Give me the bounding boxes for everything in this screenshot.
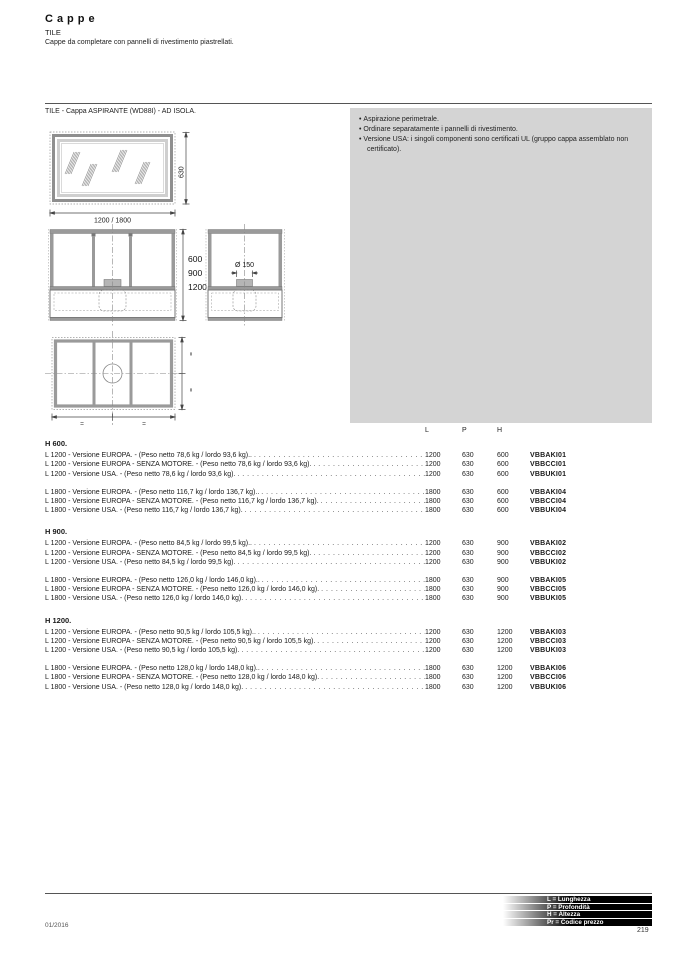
column-header-h: H: [497, 426, 530, 435]
dot-leader: [317, 637, 425, 646]
product-table: L P H H 600.L 1200 - Versione EUROPA. - …: [45, 426, 651, 704]
dot-leader: [261, 488, 425, 497]
product-code: VBBUKI03: [530, 646, 651, 655]
dimension-l: 1800: [425, 683, 462, 692]
legend-item: L = Lunghezza: [503, 896, 652, 904]
product-code: VBBAKI04: [530, 488, 651, 497]
product-row: L 1200 - Versione USA. - (Peso netto 90,…: [45, 646, 651, 655]
dot-leader: [262, 576, 425, 585]
drawing-plan-view: = = = =: [45, 331, 194, 428]
dimension-p: 630: [462, 497, 497, 506]
row-group: L 1800 - Versione EUROPA. - (Peso netto …: [45, 576, 651, 604]
product-code: VBBUKI04: [530, 506, 651, 515]
dimension-p: 630: [462, 451, 497, 460]
dimension-h: 600: [497, 497, 530, 506]
catalog-date: 01/2016: [45, 922, 69, 929]
column-header-p: P: [462, 426, 497, 435]
product-description: L 1800 - Versione USA. - (Peso netto 116…: [45, 506, 425, 515]
product-row: L 1800 - Versione EUROPA - SENZA MOTORE.…: [45, 497, 651, 506]
product-description-text: L 1200 - Versione EUROPA - SENZA MOTORE.…: [45, 637, 315, 646]
dimension-p: 630: [462, 549, 497, 558]
note-item: Versione USA: i singoli componenti sono …: [359, 135, 643, 155]
product-code: VBBCCI02: [530, 549, 651, 558]
dimension-p: 630: [462, 506, 497, 515]
dot-leader: [258, 628, 425, 637]
product-row: L 1800 - Versione EUROPA. - (Peso netto …: [45, 576, 651, 585]
product-row: L 1200 - Versione EUROPA. - (Peso netto …: [45, 451, 651, 460]
dimension-l: 1800: [425, 497, 462, 506]
product-description: L 1200 - Versione EUROPA - SENZA MOTORE.…: [45, 637, 425, 646]
product-description: L 1800 - Versione EUROPA - SENZA MOTORE.…: [45, 497, 425, 506]
table-section: H 900.L 1200 - Versione EUROPA. - (Peso …: [45, 527, 651, 603]
dimension-l: 1200: [425, 558, 462, 567]
row-group: L 1800 - Versione EUROPA. - (Peso netto …: [45, 664, 651, 692]
section-heading: H 1200.: [45, 616, 651, 625]
series-description: Cappe da completare con pannelli di rive…: [45, 39, 234, 46]
legend-item: Pr = Codice prezzo: [503, 919, 652, 927]
drawing-front-view: 600 900 1200: [49, 224, 208, 327]
row-group: L 1200 - Versione EUROPA. - (Peso netto …: [45, 451, 651, 479]
dimension-l: 1800: [425, 664, 462, 673]
product-description-text: L 1200 - Versione EUROPA - SENZA MOTORE.…: [45, 460, 311, 469]
product-description: L 1200 - Versione USA. - (Peso netto 78,…: [45, 470, 425, 479]
dimension-l: 1800: [425, 576, 462, 585]
product-code: VBBAKI06: [530, 664, 651, 673]
table-section: H 1200.L 1200 - Versione EUROPA. - (Peso…: [45, 616, 651, 692]
dimension-h: 1200: [497, 628, 530, 637]
product-code: VBBCCI01: [530, 460, 651, 469]
product-description-text: L 1200 - Versione USA. - (Peso netto 84,…: [45, 558, 235, 567]
product-description-text: L 1800 - Versione EUROPA - SENZA MOTORE.…: [45, 497, 319, 506]
product-row: L 1800 - Versione EUROPA - SENZA MOTORE.…: [45, 673, 651, 682]
product-description-text: L 1200 - Versione EUROPA. - (Peso netto …: [45, 451, 252, 460]
dimension-l: 1200: [425, 451, 462, 460]
width-dimension-label: 1200 / 1800: [94, 218, 131, 225]
product-description-text: L 1800 - Versione USA. - (Peso netto 126…: [45, 594, 243, 603]
dimension-p: 630: [462, 488, 497, 497]
product-code: VBBUKI05: [530, 594, 651, 603]
table-section: H 600.L 1200 - Versione EUROPA. - (Peso …: [45, 439, 651, 515]
product-code: VBBCCI06: [530, 673, 651, 682]
note-item: Ordinare separatamente i pannelli di riv…: [359, 125, 643, 135]
product-code: VBBUKI01: [530, 470, 651, 479]
dimension-p: 630: [462, 646, 497, 655]
equal-spacing-mark: =: [187, 352, 194, 356]
notes-list: Aspirazione perimetrale. Ordinare separa…: [359, 115, 643, 155]
dimension-p: 630: [462, 594, 497, 603]
product-description: L 1200 - Versione USA. - (Peso netto 90,…: [45, 646, 425, 655]
page-title: Cappe: [45, 13, 234, 25]
product-description-text: L 1200 - Versione EUROPA. - (Peso netto …: [45, 628, 256, 637]
product-description-text: L 1200 - Versione EUROPA. - (Peso netto …: [45, 539, 252, 548]
product-description-text: L 1800 - Versione EUROPA - SENZA MOTORE.…: [45, 673, 319, 682]
series-name: TILE: [45, 28, 234, 37]
section-heading: H 600.: [45, 439, 651, 448]
dimension-h: 1200: [497, 664, 530, 673]
document-header: Cappe TILE Cappe da completare con panne…: [45, 13, 234, 46]
bottom-divider: [45, 893, 652, 894]
note-item: Aspirazione perimetrale.: [359, 115, 643, 125]
height-dimension-label: 630: [179, 166, 186, 178]
dimension-h: 900: [497, 539, 530, 548]
dimension-l: 1800: [425, 585, 462, 594]
dimension-p: 630: [462, 576, 497, 585]
dimension-l: 1200: [425, 637, 462, 646]
dimension-h: 1200: [497, 683, 530, 692]
product-row: L 1200 - Versione EUROPA - SENZA MOTORE.…: [45, 549, 651, 558]
product-row: L 1800 - Versione EUROPA - SENZA MOTORE.…: [45, 585, 651, 594]
product-description-text: L 1200 - Versione USA. - (Peso netto 90,…: [45, 646, 239, 655]
product-description-text: L 1200 - Versione USA. - (Peso netto 78,…: [45, 470, 235, 479]
dot-leader: [254, 539, 425, 548]
product-description: L 1800 - Versione USA. - (Peso netto 126…: [45, 594, 425, 603]
dimension-p: 630: [462, 460, 497, 469]
width-dimension: [50, 210, 175, 217]
dimension-l: 1200: [425, 628, 462, 637]
dot-leader: [321, 585, 425, 594]
product-description: L 1800 - Versione EUROPA. - (Peso netto …: [45, 664, 425, 673]
technical-drawings: 630 1200 / 1800 600 900 1200: [45, 126, 295, 431]
drawing-side-view: Ø 150: [206, 224, 285, 327]
dimension-l: 1800: [425, 506, 462, 515]
product-table-body: H 600.L 1200 - Versione EUROPA. - (Peso …: [45, 439, 651, 692]
dimension-h: 600: [497, 460, 530, 469]
dimension-p: 630: [462, 558, 497, 567]
legend-item: H = Altezza: [503, 911, 652, 919]
product-description: L 1800 - Versione EUROPA. - (Peso netto …: [45, 576, 425, 585]
product-code: VBBUKI06: [530, 683, 651, 692]
product-code: VBBUKI02: [530, 558, 651, 567]
dot-leader: [237, 470, 425, 479]
dimension-h: 900: [497, 558, 530, 567]
dot-leader: [241, 646, 425, 655]
front-height-label: 900: [188, 268, 202, 278]
product-description-text: L 1200 - Versione EUROPA - SENZA MOTORE.…: [45, 549, 311, 558]
dimension-p: 630: [462, 628, 497, 637]
product-row: L 1200 - Versione EUROPA. - (Peso netto …: [45, 539, 651, 548]
product-code: VBBAKI02: [530, 539, 651, 548]
dimension-p: 630: [462, 683, 497, 692]
page-number: 219: [637, 927, 649, 934]
notes-box: Aspirazione perimetrale. Ordinare separa…: [350, 108, 652, 423]
dimension-h: 1200: [497, 637, 530, 646]
product-row: L 1200 - Versione EUROPA. - (Peso netto …: [45, 628, 651, 637]
dimension-h: 600: [497, 451, 530, 460]
product-description: L 1200 - Versione EUROPA - SENZA MOTORE.…: [45, 549, 425, 558]
dot-leader: [313, 460, 425, 469]
product-row: L 1800 - Versione USA. - (Peso netto 128…: [45, 683, 651, 692]
product-row: L 1200 - Versione EUROPA - SENZA MOTORE.…: [45, 460, 651, 469]
dimension-h: 600: [497, 506, 530, 515]
dimension-h: 900: [497, 576, 530, 585]
front-height-label: 1200: [188, 282, 207, 292]
dot-leader: [262, 664, 425, 673]
dimension-h: 600: [497, 488, 530, 497]
product-description-text: L 1800 - Versione USA. - (Peso netto 128…: [45, 683, 243, 692]
product-caption: TILE - Cappa ASPIRANTE (WD88I) - AD ISOL…: [45, 108, 196, 115]
product-row: L 1800 - Versione EUROPA. - (Peso netto …: [45, 664, 651, 673]
product-description: L 1200 - Versione EUROPA - SENZA MOTORE.…: [45, 460, 425, 469]
dimension-p: 630: [462, 539, 497, 548]
product-code: VBBAKI01: [530, 451, 651, 460]
dot-leader: [237, 558, 425, 567]
dimension-l: 1200: [425, 460, 462, 469]
row-group: L 1200 - Versione EUROPA. - (Peso netto …: [45, 628, 651, 656]
product-description: L 1800 - Versione USA. - (Peso netto 128…: [45, 683, 425, 692]
dot-leader: [245, 506, 425, 515]
product-description: L 1200 - Versione USA. - (Peso netto 84,…: [45, 558, 425, 567]
product-code: VBBAKI05: [530, 576, 651, 585]
product-description-text: L 1800 - Versione EUROPA. - (Peso netto …: [45, 664, 260, 673]
product-code: VBBCCI03: [530, 637, 651, 646]
legend-box: L = Lunghezza P = Profondità H = Altezza…: [503, 896, 652, 926]
column-header-l: L: [425, 426, 462, 435]
duct-diameter-label: Ø 150: [235, 262, 254, 269]
legend-item: P = Profondità: [503, 904, 652, 912]
product-code: VBBCCI04: [530, 497, 651, 506]
product-row: L 1200 - Versione USA. - (Peso netto 84,…: [45, 558, 651, 567]
product-description: L 1800 - Versione EUROPA - SENZA MOTORE.…: [45, 585, 425, 594]
row-group: L 1200 - Versione EUROPA. - (Peso netto …: [45, 539, 651, 567]
product-row: L 1200 - Versione USA. - (Peso netto 78,…: [45, 470, 651, 479]
product-description-text: L 1800 - Versione USA. - (Peso netto 116…: [45, 506, 243, 515]
dimension-h: 900: [497, 549, 530, 558]
product-row: L 1200 - Versione EUROPA - SENZA MOTORE.…: [45, 637, 651, 646]
dimension-p: 630: [462, 664, 497, 673]
dot-leader: [313, 549, 425, 558]
table-column-headers: L P H: [45, 426, 651, 435]
product-description: L 1200 - Versione EUROPA. - (Peso netto …: [45, 451, 425, 460]
drawing-glass-panel: 630 1200 / 1800: [50, 132, 190, 225]
dimension-l: 1800: [425, 488, 462, 497]
product-code: VBBAKI03: [530, 628, 651, 637]
dimension-h: 900: [497, 594, 530, 603]
product-description: L 1800 - Versione EUROPA. - (Peso netto …: [45, 488, 425, 497]
product-row: L 1800 - Versione EUROPA. - (Peso netto …: [45, 488, 651, 497]
dimension-h: 1200: [497, 673, 530, 682]
product-row: L 1800 - Versione USA. - (Peso netto 126…: [45, 594, 651, 603]
product-code: VBBCCI05: [530, 585, 651, 594]
dimension-h: 900: [497, 585, 530, 594]
dot-leader: [245, 594, 425, 603]
dimension-l: 1200: [425, 549, 462, 558]
plan-width-dimension: [52, 414, 175, 421]
product-description-text: L 1800 - Versione EUROPA. - (Peso netto …: [45, 488, 259, 497]
dimension-p: 630: [462, 637, 497, 646]
dimension-h: 1200: [497, 646, 530, 655]
product-row: L 1800 - Versione USA. - (Peso netto 116…: [45, 506, 651, 515]
product-description-text: L 1800 - Versione EUROPA. - (Peso netto …: [45, 576, 260, 585]
dimension-l: 1200: [425, 646, 462, 655]
product-description: L 1200 - Versione EUROPA. - (Peso netto …: [45, 628, 425, 637]
equal-spacing-mark: =: [187, 388, 194, 392]
top-divider: [45, 103, 652, 104]
dimension-l: 1800: [425, 594, 462, 603]
product-description-text: L 1800 - Versione EUROPA - SENZA MOTORE.…: [45, 585, 319, 594]
dot-leader: [321, 497, 425, 506]
front-height-dimension: [180, 230, 187, 321]
dimension-h: 600: [497, 470, 530, 479]
dot-leader: [321, 673, 425, 682]
dimension-l: 1800: [425, 673, 462, 682]
front-height-label: 600: [188, 254, 202, 264]
product-description: L 1200 - Versione EUROPA. - (Peso netto …: [45, 539, 425, 548]
dimension-p: 630: [462, 673, 497, 682]
dimension-p: 630: [462, 585, 497, 594]
product-description: L 1800 - Versione EUROPA - SENZA MOTORE.…: [45, 673, 425, 682]
dimension-p: 630: [462, 470, 497, 479]
dot-leader: [245, 683, 425, 692]
dot-leader: [254, 451, 425, 460]
dimension-l: 1200: [425, 470, 462, 479]
row-group: L 1800 - Versione EUROPA. - (Peso netto …: [45, 488, 651, 516]
plan-depth-dimension: [179, 338, 186, 410]
dimension-l: 1200: [425, 539, 462, 548]
section-heading: H 900.: [45, 527, 651, 536]
